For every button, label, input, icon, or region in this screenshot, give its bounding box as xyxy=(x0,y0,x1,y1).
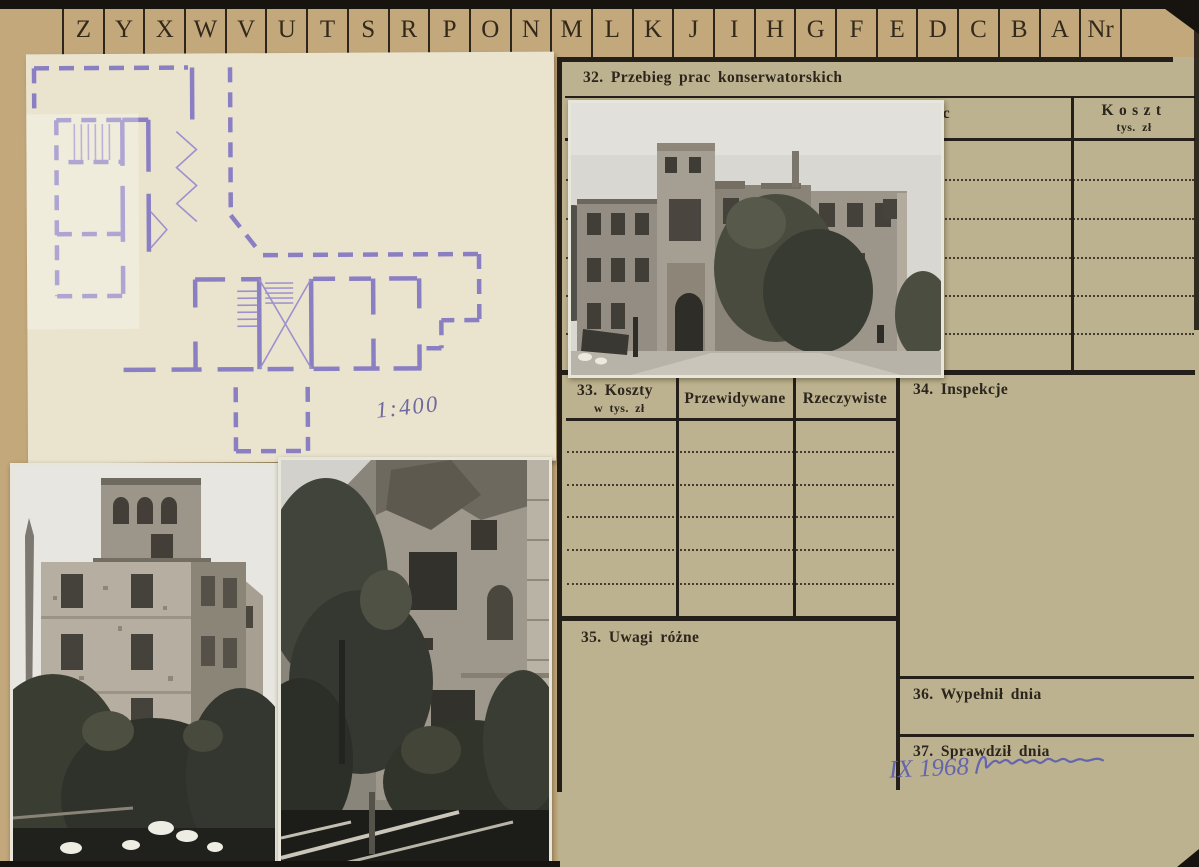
section33-unit: w tys. zł xyxy=(594,401,645,416)
photo-ruin-wall xyxy=(278,457,552,867)
scan-edge-right xyxy=(1194,0,1199,330)
tab-letter: K xyxy=(644,16,662,44)
tab-letter: N xyxy=(522,16,540,44)
section33-label: 33. Koszty xyxy=(577,382,653,400)
section37-top-line xyxy=(900,734,1194,737)
tab-cell-b: B xyxy=(998,9,1039,58)
tab-strip: ZYXWVUTSRPONMLKJIHGFEDCBANr xyxy=(62,9,1122,58)
card-background: ZYXWVUTSRPONMLKJIHGFEDCBANr 32. Przebieg… xyxy=(0,0,1199,867)
scanned-record-card: ZYXWVUTSRPONMLKJIHGFEDCBANr 32. Przebieg… xyxy=(0,0,1199,867)
tab-letter: S xyxy=(361,16,375,44)
tab-cell-m: M xyxy=(550,9,591,58)
scan-edge-bottom xyxy=(0,861,560,867)
tab-letter: T xyxy=(320,16,335,44)
tab-cell-g: G xyxy=(794,9,835,58)
tab-cell-l: L xyxy=(591,9,632,58)
section35-label: 35. Uwagi różne xyxy=(581,629,699,647)
section33-bottom-border xyxy=(558,616,899,621)
scan-edge-top xyxy=(0,0,1199,9)
photo-palace-front xyxy=(568,100,944,378)
tab-letter: W xyxy=(194,16,218,44)
tab-cell-f: F xyxy=(835,9,876,58)
tab-letter: Z xyxy=(76,16,91,44)
paper-patch xyxy=(26,114,139,330)
tab-cell-j: J xyxy=(672,9,713,58)
tab-cell-h: H xyxy=(754,9,795,58)
section33-row-line xyxy=(567,516,894,518)
scan-corner-top-right xyxy=(1153,0,1199,34)
tab-cell-n: N xyxy=(510,9,551,58)
handwritten-date: IX 1968 xyxy=(889,753,970,784)
section33-divider-2 xyxy=(793,376,796,616)
tab-letter: G xyxy=(807,16,825,44)
form-top-border xyxy=(557,57,1173,62)
tab-cell-a: A xyxy=(1039,9,1080,58)
section33-row-line xyxy=(567,549,894,551)
tab-cell-v: V xyxy=(225,9,266,58)
tab-cell-i: I xyxy=(713,9,754,58)
tab-cell-w: W xyxy=(184,9,225,58)
tab-letter: H xyxy=(766,16,784,44)
tab-cell-z: Z xyxy=(62,9,103,58)
photo-tower-corner xyxy=(10,463,278,866)
tab-letter: C xyxy=(970,16,987,44)
tab-letter: U xyxy=(278,16,296,44)
section32-title-underline xyxy=(565,96,1195,98)
tab-letter: L xyxy=(605,16,620,44)
section32-title: 32. Przebieg prac konserwatorskich xyxy=(583,69,842,87)
section33-header-underline xyxy=(566,418,896,421)
tab-letter: P xyxy=(443,16,457,44)
tab-letter: O xyxy=(481,16,499,44)
tab-letter: M xyxy=(560,16,582,44)
tab-letter: X xyxy=(156,16,174,44)
tab-cell-u: U xyxy=(265,9,306,58)
tab-letter: I xyxy=(730,16,738,44)
section32-cost-header: Koszt xyxy=(1078,102,1190,120)
section33-row-line xyxy=(567,583,894,585)
tab-cell-d: D xyxy=(916,9,957,58)
section36-label: 36. Wypełnił dnia xyxy=(913,686,1042,704)
tab-letter: F xyxy=(849,16,863,44)
form-left-border xyxy=(557,57,562,792)
tab-cell-r: R xyxy=(388,9,429,58)
tab-letter: V xyxy=(237,16,255,44)
tab-letter: D xyxy=(929,16,947,44)
section32-cost-unit: tys. zł xyxy=(1078,120,1190,135)
section34-label: 34. Inspekcje xyxy=(913,381,1008,399)
section33-divider-1 xyxy=(676,376,679,616)
tab-letter: B xyxy=(1011,16,1028,44)
section33-row-line xyxy=(567,451,894,453)
section36-top-line xyxy=(900,676,1194,679)
tab-letter: Nr xyxy=(1087,16,1113,44)
tab-cell-k: K xyxy=(632,9,673,58)
section32-column-divider xyxy=(1071,98,1074,372)
floor-plan-paper: 1:400 xyxy=(26,52,556,464)
tab-cell-t: T xyxy=(306,9,347,58)
tab-cell-e: E xyxy=(876,9,917,58)
tab-cell-y: Y xyxy=(103,9,144,58)
tab-cell-s: S xyxy=(347,9,388,58)
section34-left-border xyxy=(896,372,900,790)
section33-col-actual: Rzeczywiste xyxy=(796,390,894,408)
tab-cell-x: X xyxy=(143,9,184,58)
tab-cell-c: C xyxy=(957,9,998,58)
tab-cell-p: P xyxy=(428,9,469,58)
section33-row-line xyxy=(567,484,894,486)
tab-letter: A xyxy=(1051,16,1069,44)
section33-col-expected: Przewidywane xyxy=(679,390,791,408)
tab-letter: J xyxy=(689,16,699,44)
tab-letter: E xyxy=(889,16,904,44)
tab-cell-o: O xyxy=(469,9,510,58)
tab-letter: Y xyxy=(115,16,133,44)
signature-squiggle xyxy=(972,743,1113,785)
tab-cell-nr: Nr xyxy=(1079,9,1122,58)
tab-letter: R xyxy=(401,16,418,44)
